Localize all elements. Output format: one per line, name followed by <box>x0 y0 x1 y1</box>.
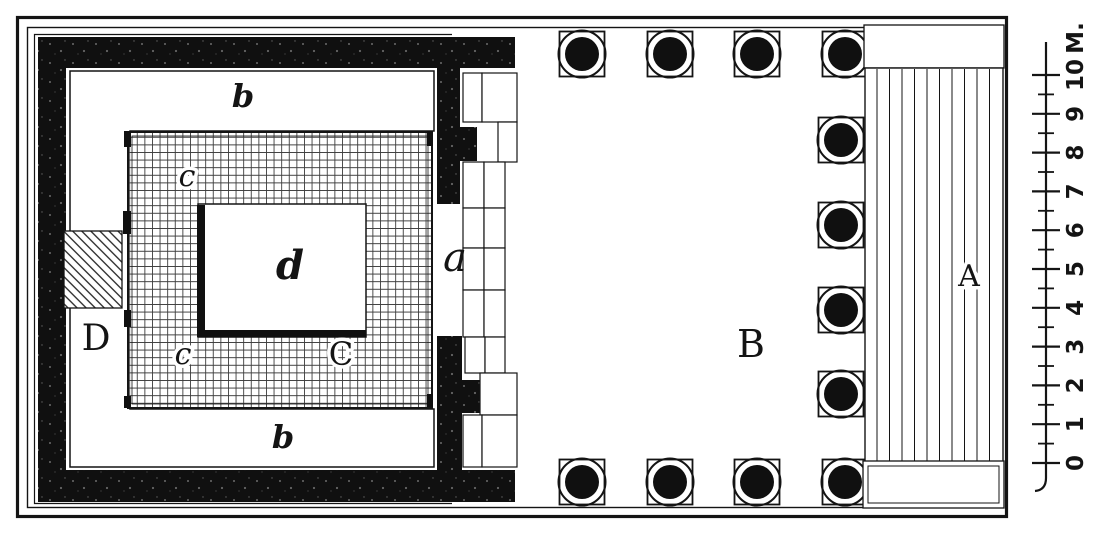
column <box>818 287 865 334</box>
label-room-b-top: b <box>232 77 254 115</box>
scale-unit-label: M. <box>1063 22 1089 54</box>
wall-door-jamb-south <box>460 380 480 413</box>
column <box>559 31 606 78</box>
masonry-block <box>482 415 517 467</box>
scale-tick-label: 4 <box>1063 300 1089 316</box>
column <box>818 202 865 249</box>
masonry-block <box>498 122 517 162</box>
wall-south <box>38 470 515 502</box>
label-pavement-c-lower: c <box>175 337 192 372</box>
masonry-block <box>480 373 517 415</box>
label-pavement-c-upper: c <box>179 159 196 194</box>
masonry-block <box>463 290 484 337</box>
label-stairs-A: A <box>957 259 980 294</box>
label-pavement-C: C <box>329 335 353 373</box>
shadow-dash <box>124 131 131 147</box>
floor-plan-figure: 0 1 2 3 4 5 6 7 8 9 10 M. b b c c C d D … <box>0 0 1110 534</box>
masonry-block <box>465 337 485 373</box>
stair-landing-top <box>864 25 1004 68</box>
masonry-block <box>482 73 517 122</box>
shadow-dash <box>124 396 131 408</box>
column <box>818 117 865 164</box>
column <box>818 371 865 418</box>
column <box>559 459 606 506</box>
scale-tick-label: 5 <box>1063 261 1089 277</box>
masonry-block <box>463 415 482 467</box>
label-base-d: d <box>276 242 304 289</box>
label-door-a: a <box>443 235 467 281</box>
column <box>647 459 694 506</box>
base-d-shadow-left <box>197 205 205 336</box>
scale-tick-label: 8 <box>1063 145 1089 161</box>
column <box>734 459 781 506</box>
masonry-block <box>463 73 482 122</box>
shadow-dash <box>123 211 131 234</box>
label-room-b-bottom: b <box>272 418 294 456</box>
scale-tick-label: 3 <box>1063 339 1089 355</box>
label-feature-D: D <box>82 318 111 359</box>
masonry-block <box>484 290 505 337</box>
stair-landing-bottom <box>863 461 1004 508</box>
scale-tick-label: 2 <box>1063 377 1089 393</box>
scale-tick-label: 6 <box>1063 222 1089 238</box>
scale-tick-label: 7 <box>1063 183 1089 199</box>
shadow-dash <box>427 131 433 146</box>
masonry-block <box>485 337 505 373</box>
hatched-feature-d <box>64 231 122 308</box>
column <box>647 31 694 78</box>
shadow-dash <box>124 310 131 327</box>
wall-door-anta-north <box>437 68 460 204</box>
label-hall-B: B <box>737 322 765 366</box>
scale-tick-labels: 0 1 2 3 4 5 6 7 8 9 10 M. <box>1063 22 1089 471</box>
scale-tick-label: 10 <box>1063 59 1089 91</box>
scale-bar: 0 1 2 3 4 5 6 7 8 9 10 M. <box>1032 22 1089 491</box>
scale-tick-label: 1 <box>1063 416 1089 432</box>
staircase-a <box>863 25 1004 508</box>
wall-west <box>38 37 66 502</box>
masonry-block <box>484 208 505 248</box>
scale-tick-label: 9 <box>1063 106 1089 122</box>
column <box>822 31 869 78</box>
column <box>822 459 869 506</box>
scale-tick-label: 0 <box>1063 455 1089 471</box>
stair-flight <box>865 68 1003 462</box>
masonry-block <box>484 248 505 290</box>
shadow-dash <box>427 394 433 407</box>
wall-north <box>38 37 515 68</box>
floor-plan-svg: 0 1 2 3 4 5 6 7 8 9 10 M. b b c c C d D … <box>0 0 1110 534</box>
masonry-block <box>484 162 505 208</box>
wall-door-anta-south <box>437 336 462 470</box>
column <box>734 31 781 78</box>
wall-door-jamb-north <box>458 127 477 161</box>
masonry-block <box>463 162 484 208</box>
colonnade <box>559 31 869 506</box>
